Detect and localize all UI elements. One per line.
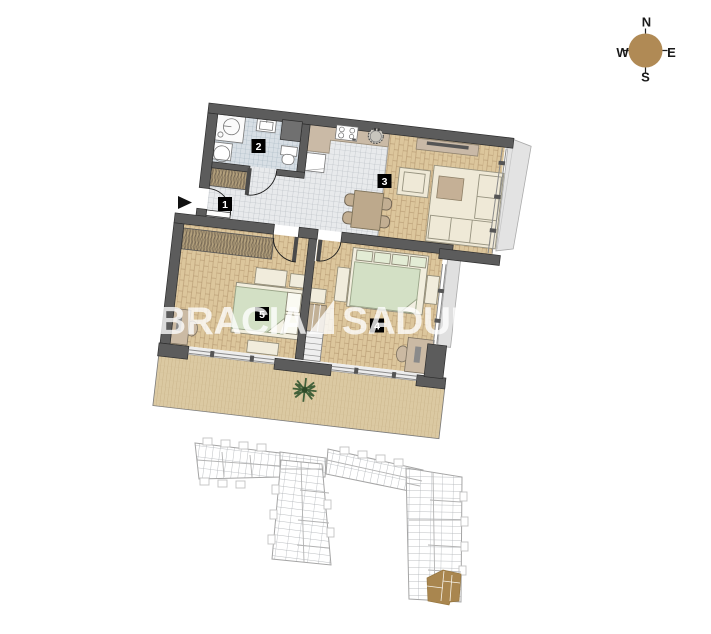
svg-text:SADURSCY: SADURSCY [342,300,557,343]
svg-text:S: S [641,70,650,85]
svg-text:2: 2 [256,141,262,153]
svg-text:E: E [667,45,676,60]
svg-text:BRACIA: BRACIA [158,300,307,343]
svg-text:N: N [642,15,651,30]
svg-text:W: W [616,45,629,60]
svg-text:1: 1 [222,199,228,211]
svg-text:3: 3 [382,176,388,188]
